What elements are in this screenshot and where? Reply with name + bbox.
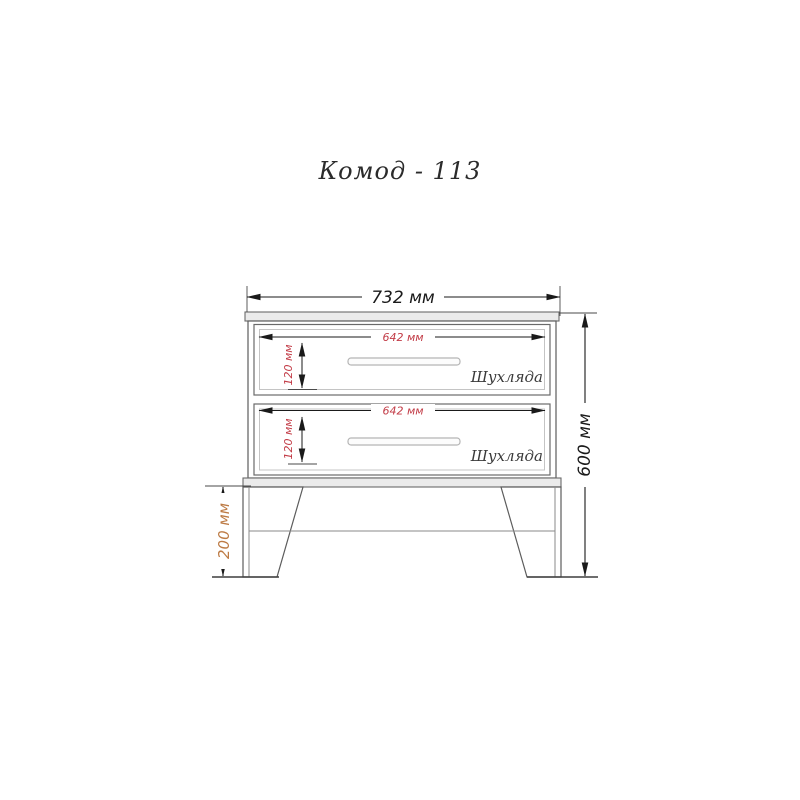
furniture-diagram: 732 мм 600 мм 200 мм 642 мм [0, 0, 800, 800]
drawer-1-width-label: 642 мм [382, 331, 423, 344]
left-leg [243, 487, 303, 577]
dim-overall-height: 600 мм [559, 313, 597, 576]
cabinet-drawing [212, 312, 598, 577]
page: Комод - 113 [0, 0, 800, 800]
drawer-2-width-label: 642 мм [382, 405, 423, 418]
drawer-1-handle [348, 358, 460, 365]
drawer-2-height-label: 120 мм [282, 418, 295, 459]
dim-width-label: 732 мм [371, 288, 435, 308]
dim-leg-label: 200 мм [215, 503, 233, 559]
drawer-1-height-label: 120 мм [282, 344, 295, 385]
drawer-2-name-label: Шухляда [470, 447, 543, 465]
right-leg [501, 487, 561, 577]
cabinet-top-panel [245, 312, 559, 321]
drawer-2-handle [348, 438, 460, 445]
cabinet-bottom-rail [243, 478, 561, 487]
drawer-1-name-label: Шухляда [470, 368, 543, 386]
dim-height-label: 600 мм [575, 413, 595, 477]
